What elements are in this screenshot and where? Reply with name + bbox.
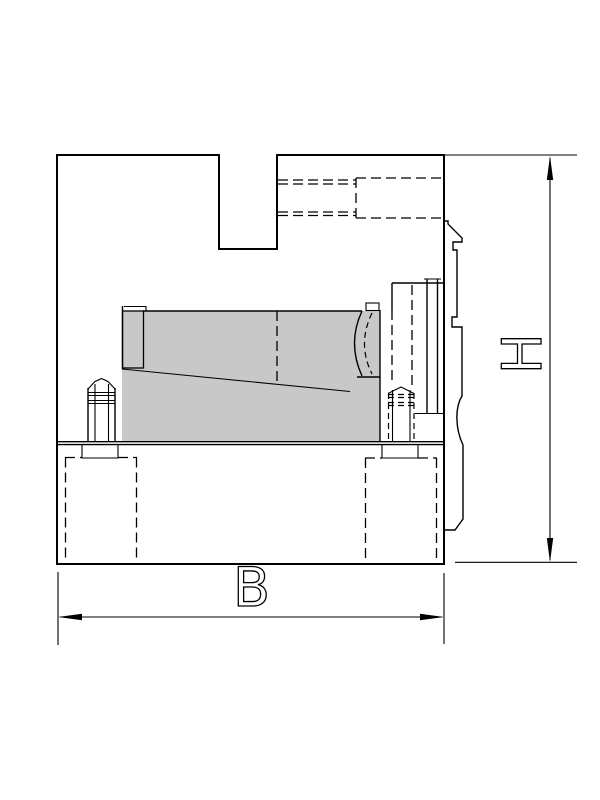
- right-screw: [388, 387, 414, 441]
- h-arrow-down: [547, 538, 553, 562]
- right-notch: [382, 445, 418, 458]
- left-screw-dome: [88, 379, 115, 390]
- bore-insert: [122, 303, 380, 442]
- flange-outline: [444, 221, 463, 530]
- retainer-plate: [392, 279, 443, 414]
- dimension-width: B: [58, 556, 444, 645]
- technical-drawing-canvas: H B: [0, 0, 600, 800]
- base-block: [57, 442, 444, 562]
- spindle-flange-profile: [444, 221, 463, 530]
- height-dimension-label: H: [491, 333, 554, 374]
- h-arrow-up: [547, 156, 553, 180]
- b-arrow-right: [420, 614, 444, 620]
- relief-step: [124, 307, 146, 312]
- left-screw: [88, 379, 115, 442]
- width-dimension-label: B: [233, 556, 270, 619]
- clearance-gap: [366, 303, 379, 311]
- dimension-height: H: [444, 155, 577, 562]
- bore-region: [122, 311, 380, 442]
- left-notch: [82, 445, 118, 458]
- top-hidden-hole: [278, 178, 443, 218]
- b-arrow-left: [58, 614, 82, 620]
